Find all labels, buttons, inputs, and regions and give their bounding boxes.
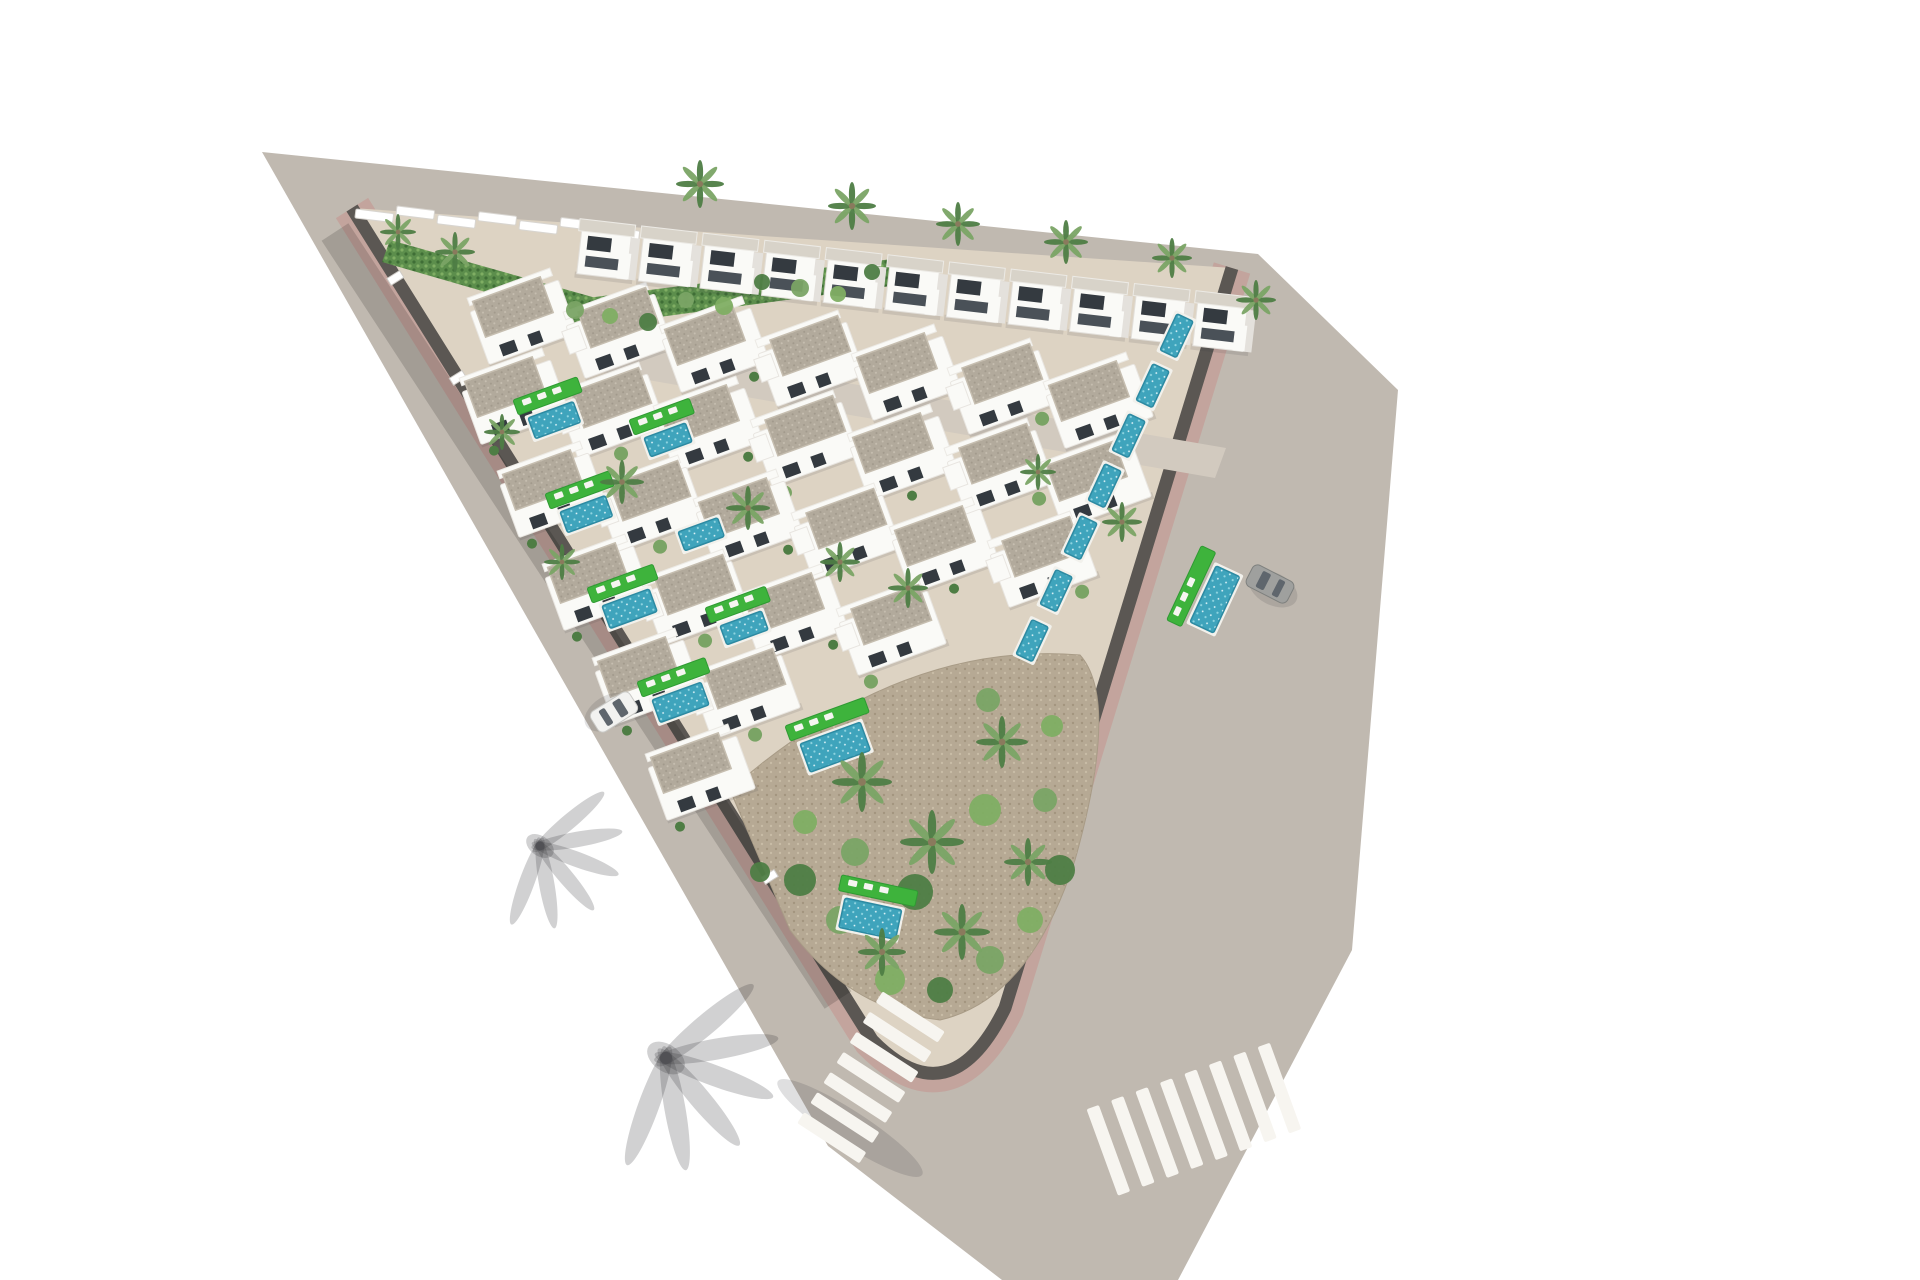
bush	[793, 810, 817, 834]
palm-tree	[934, 904, 990, 960]
palm-tree	[858, 928, 906, 976]
palm-tree	[544, 544, 580, 580]
upper-window	[1079, 293, 1104, 310]
palm-trunk	[849, 203, 855, 209]
bush	[678, 292, 694, 308]
palm-trunk	[879, 949, 885, 955]
palm-trunk	[1253, 297, 1258, 302]
bush	[715, 297, 733, 315]
upper-window	[710, 250, 735, 267]
palm-trunk	[1036, 470, 1041, 475]
upper-window	[833, 265, 858, 282]
upper-window	[648, 243, 673, 260]
palm-tree	[900, 810, 964, 874]
palm-trunk	[905, 585, 910, 590]
bush	[1045, 855, 1075, 885]
bush	[566, 301, 584, 319]
bush	[927, 977, 953, 1003]
upper-window	[1203, 308, 1228, 325]
site-plan-render	[0, 0, 1920, 1280]
two-storey-villa	[573, 219, 641, 285]
bush	[750, 862, 770, 882]
palm-trunk	[858, 778, 866, 786]
two-storey-villa	[696, 233, 764, 299]
upper-window	[587, 236, 612, 253]
palm-tree	[1044, 220, 1088, 264]
palm-tree	[484, 414, 520, 450]
palm-trunk	[697, 181, 703, 187]
bush	[864, 264, 880, 280]
palm-tree	[1152, 238, 1192, 278]
palm-tree	[1004, 838, 1052, 886]
palm-trunk	[999, 739, 1006, 746]
palm-tree	[1236, 280, 1276, 320]
two-storey-villa	[635, 226, 703, 292]
palm-tree	[600, 460, 644, 504]
palm-trunk	[1119, 519, 1124, 524]
bush	[976, 688, 1000, 712]
bush	[830, 286, 846, 302]
aerial-render-page	[0, 0, 1920, 1280]
upper-window	[771, 257, 796, 274]
two-storey-villa	[943, 262, 1011, 328]
bush	[639, 313, 657, 331]
bush	[754, 274, 770, 290]
palm-tree	[820, 542, 860, 582]
palm-tree	[380, 214, 416, 250]
palm-trunk	[745, 505, 751, 511]
two-storey-villa	[758, 240, 826, 306]
bush	[1017, 907, 1043, 933]
bush	[784, 864, 816, 896]
two-storey-villa	[820, 248, 888, 314]
palm-trunk	[396, 230, 401, 235]
palm-tree	[936, 202, 980, 246]
palm-tree	[888, 568, 928, 608]
palm-tree	[828, 182, 876, 230]
bush	[602, 308, 618, 324]
palm-tree	[976, 716, 1028, 768]
palm-trunk	[452, 249, 457, 254]
bush	[841, 838, 869, 866]
palm-trunk	[560, 560, 565, 565]
palm-trunk	[1025, 859, 1031, 865]
upper-window	[895, 272, 920, 289]
upper-window	[956, 279, 981, 296]
palm-tree	[676, 160, 724, 208]
palm-tree	[832, 752, 892, 812]
palm-trunk	[1063, 239, 1069, 245]
palm-trunk	[500, 430, 505, 435]
two-storey-villa	[1066, 276, 1134, 342]
palm-tree	[1102, 502, 1142, 542]
two-storey-villa	[1004, 269, 1072, 335]
bush	[1041, 715, 1063, 737]
bush	[791, 279, 809, 297]
palm-trunk	[955, 221, 961, 227]
palm-trunk	[1169, 255, 1174, 260]
two-storey-villa	[881, 255, 949, 321]
palm-tree	[1020, 454, 1056, 490]
palm-trunk	[928, 838, 936, 846]
bush	[969, 794, 1001, 826]
palm-trunk	[958, 928, 965, 935]
palm-tree	[435, 232, 475, 272]
palm-trunk	[837, 559, 842, 564]
palm-tree	[726, 486, 770, 530]
upper-window	[1141, 301, 1166, 318]
upper-window	[1018, 286, 1043, 303]
bush	[1033, 788, 1057, 812]
palm-trunk	[619, 479, 625, 485]
